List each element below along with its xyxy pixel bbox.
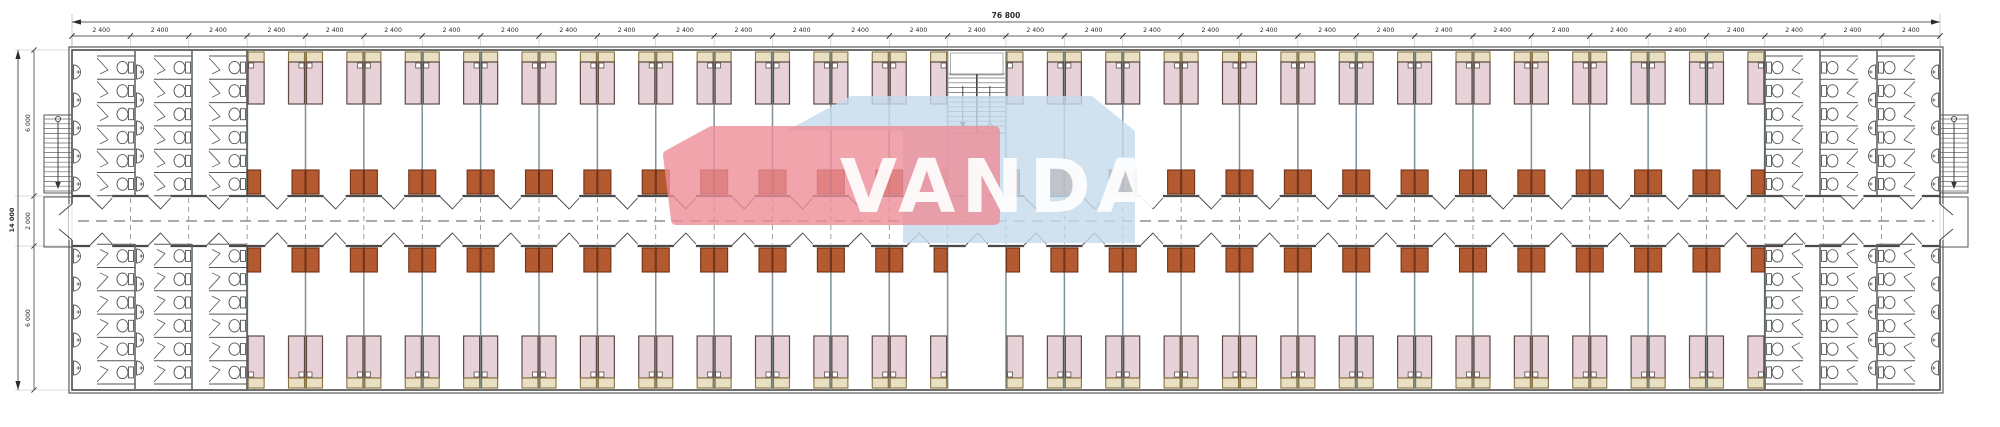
bed-symbol [1047,336,1063,388]
bed-symbol [405,52,421,104]
wardrobe-symbol [773,248,786,272]
bed-symbol [1241,336,1257,388]
wardrobe-symbol [1474,248,1487,272]
bed-symbol [1416,52,1432,104]
wardrobe-symbol [1751,248,1764,272]
wardrobe-symbol [1357,248,1370,272]
bed-symbol [1690,336,1706,388]
svg-text:2 400: 2 400 [326,27,344,34]
bed-symbol [1514,52,1530,104]
svg-text:2 400: 2 400 [384,27,402,34]
wardrobe-symbol [890,248,903,272]
bed-symbol [1591,336,1607,388]
bed-symbol [1223,52,1239,104]
bed-symbol [1357,336,1373,388]
wardrobe-symbol [526,248,539,272]
svg-text:2 400: 2 400 [1668,27,1686,34]
bed-symbol [774,52,790,104]
bed-symbol [890,336,906,388]
wardrobe-symbol [1357,170,1370,194]
wardrobe-symbol [1182,248,1195,272]
wardrobe-symbol [248,170,261,194]
svg-text:2 400: 2 400 [151,27,169,34]
bed-symbol [540,52,556,104]
wardrobe-symbol [364,170,377,194]
bed-symbol [1182,336,1198,388]
bed-symbol [1065,336,1081,388]
bed-symbol [832,52,848,104]
bed-symbol [248,52,264,104]
bed-symbol [1532,336,1548,388]
wardrobe-symbol [1240,170,1253,194]
wardrobe-symbol [1649,170,1662,194]
bed-symbol [522,52,538,104]
wardrobe-symbol [1693,170,1706,194]
bed-symbol [1591,52,1607,104]
wardrobe-symbol [656,248,669,272]
svg-text:2 400: 2 400 [910,27,928,34]
bed-symbol [1649,52,1665,104]
bed-symbol [1299,336,1315,388]
bed-symbol [639,336,655,388]
bed-symbol [1281,52,1297,104]
svg-text:2 400: 2 400 [267,27,285,34]
svg-text:6 000: 6 000 [25,309,32,327]
bed-symbol [347,336,363,388]
wardrobe-symbol [1401,248,1414,272]
wardrobe-symbol [1343,248,1356,272]
wardrobe-symbol [467,248,480,272]
bed-symbol [580,52,596,104]
bed-symbol [1514,336,1530,388]
wardrobe-symbol [1007,248,1020,272]
wardrobe-symbol [423,248,436,272]
wardrobe-symbol [306,248,319,272]
wardrobe-symbol [1576,248,1589,272]
wardrobe-symbol [467,170,480,194]
wardrobe-symbol [526,170,539,194]
svg-text:14 000: 14 000 [8,207,16,232]
bed-symbol [307,336,323,388]
bed-symbol [832,336,848,388]
bed-symbol [1281,336,1297,388]
svg-text:2 400: 2 400 [501,27,519,34]
wardrobe-symbol [876,248,889,272]
bed-symbol [1573,336,1589,388]
svg-text:2 400: 2 400 [1610,27,1628,34]
wardrobe-symbol [540,248,553,272]
wardrobe-symbol [1590,248,1603,272]
wardrobe-symbol [1518,248,1531,272]
bed-symbol [756,336,772,388]
bed-symbol [756,52,772,104]
bed-symbol [598,336,614,388]
wardrobe-symbol [817,248,830,272]
bed-symbol [931,336,947,388]
bed-symbol [1690,52,1706,104]
bed-symbol [1649,336,1665,388]
bed-symbol [289,52,305,104]
wardrobe-symbol [364,248,377,272]
bed-symbol [1708,52,1724,104]
wardrobe-symbol [715,248,728,272]
svg-text:2 400: 2 400 [209,27,227,34]
wardrobe-symbol [1168,170,1181,194]
wardrobe-symbol [1065,248,1078,272]
svg-text:2 400: 2 400 [1085,27,1103,34]
svg-text:2 400: 2 400 [1143,27,1161,34]
bed-symbol [657,52,673,104]
svg-text:2 400: 2 400 [1493,27,1511,34]
bed-symbol [1223,336,1239,388]
svg-text:2 400: 2 400 [1377,27,1395,34]
bed-symbol [1416,336,1432,388]
bed-symbol [347,52,363,104]
bed-symbol [1124,336,1140,388]
wardrobe-symbol [1635,248,1648,272]
svg-text:6 000: 6 000 [25,114,32,132]
svg-text:2 400: 2 400 [1552,27,1570,34]
bed-symbol [1164,52,1180,104]
bed-symbol [482,52,498,104]
bed-symbol [1708,336,1724,388]
wardrobe-symbol [1182,170,1195,194]
wardrobe-symbol [292,248,305,272]
bed-symbol [464,52,480,104]
svg-text:2 400: 2 400 [968,27,986,34]
wardrobe-symbol [1123,248,1136,272]
bed-symbol [580,336,596,388]
wardrobe-symbol [1284,248,1297,272]
wardrobe-symbol [759,248,772,272]
wardrobe-symbol [1051,248,1064,272]
bed-symbol [1164,336,1180,388]
bed-symbol [482,336,498,388]
wardrobe-symbol [1298,170,1311,194]
bed-symbol [1398,52,1414,104]
bed-symbol [1182,52,1198,104]
wardrobe-symbol [540,170,553,194]
bed-symbol [522,336,538,388]
wardrobe-symbol [1518,170,1531,194]
bed-symbol [1631,336,1647,388]
bed-symbol [423,336,439,388]
wardrobe-symbol [1751,170,1764,194]
bed-symbol [697,52,713,104]
bed-symbol [598,52,614,104]
bed-symbol [715,52,731,104]
bed-symbol [1748,336,1764,388]
svg-text:2 400: 2 400 [92,27,110,34]
bed-symbol [405,336,421,388]
bed-symbol [365,336,381,388]
bed-symbol [872,336,888,388]
floor-plan-screenshot: 76 8002 4002 4002 4002 4002 4002 4002 40… [0,0,2000,427]
wardrobe-symbol [1240,248,1253,272]
wardrobe-symbol [481,170,494,194]
wardrobe-symbol [1693,248,1706,272]
bed-symbol [289,336,305,388]
bed-symbol [1241,52,1257,104]
wardrobe-symbol [1343,170,1356,194]
wardrobe-symbol [1415,170,1428,194]
wardrobe-symbol [1168,248,1181,272]
bed-symbol [715,336,731,388]
svg-text:2 400: 2 400 [793,27,811,34]
wardrobe-symbol [1298,248,1311,272]
svg-text:2 400: 2 400 [1026,27,1044,34]
wardrobe-symbol [701,248,714,272]
bed-symbol [1456,336,1472,388]
bed-symbol [814,336,830,388]
bed-symbol [814,52,830,104]
watermark-text: VANDA [840,144,1160,230]
wardrobe-symbol [423,170,436,194]
svg-text:2 400: 2 400 [734,27,752,34]
wardrobe-symbol [1226,248,1239,272]
bed-symbol [657,336,673,388]
wardrobe-symbol [584,248,597,272]
bed-symbol [365,52,381,104]
wardrobe-symbol [1226,170,1239,194]
wardrobe-symbol [642,170,655,194]
wardrobe-symbol [409,170,422,194]
wardrobe-symbol [934,248,947,272]
bed-symbol [1339,336,1355,388]
wardrobe-symbol [642,248,655,272]
svg-text:2 400: 2 400 [1785,27,1803,34]
wardrobe-symbol [292,170,305,194]
wardrobe-symbol [1590,170,1603,194]
svg-text:2 400: 2 400 [559,27,577,34]
svg-text:2 400: 2 400 [1902,27,1920,34]
svg-text:2 000: 2 000 [25,212,32,230]
svg-text:2 400: 2 400 [1844,27,1862,34]
wardrobe-symbol [409,248,422,272]
svg-text:2 400: 2 400 [618,27,636,34]
bed-symbol [1631,52,1647,104]
bed-symbol [248,336,264,388]
bed-symbol [774,336,790,388]
wardrobe-symbol [1707,248,1720,272]
bed-symbol [1299,52,1315,104]
bed-symbol [1398,336,1414,388]
wardrobe-symbol [598,248,611,272]
svg-text:2 400: 2 400 [443,27,461,34]
bed-symbol [1339,52,1355,104]
svg-text:2 400: 2 400 [1435,27,1453,34]
bed-symbol [1357,52,1373,104]
wardrobe-symbol [598,170,611,194]
svg-text:2 400: 2 400 [1201,27,1219,34]
wardrobe-symbol [350,248,363,272]
wardrobe-symbol [1401,170,1414,194]
bed-symbol [464,336,480,388]
bed-symbol [697,336,713,388]
wardrobe-symbol [584,170,597,194]
bed-symbol [1106,336,1122,388]
wardrobe-symbol [1532,170,1545,194]
svg-text:76 800: 76 800 [992,11,1021,20]
wardrobe-symbol [1460,170,1473,194]
wardrobe-symbol [1649,248,1662,272]
svg-text:2 400: 2 400 [1318,27,1336,34]
bed-symbol [1748,52,1764,104]
bed-symbol [540,336,556,388]
bed-symbol [1456,52,1472,104]
bed-symbol [423,52,439,104]
wardrobe-symbol [350,170,363,194]
wardrobe-symbol [481,248,494,272]
bed-symbol [1106,52,1122,104]
wardrobe-symbol [1415,248,1428,272]
floor-plan-canvas: 76 8002 4002 4002 4002 4002 4002 4002 40… [0,0,2000,427]
wardrobe-symbol [306,170,319,194]
wardrobe-symbol [1576,170,1589,194]
bed-symbol [1573,52,1589,104]
bed-symbol [1007,336,1023,388]
wardrobe-symbol [1284,170,1297,194]
wardrobe-symbol [1109,248,1122,272]
bed-symbol [1474,52,1490,104]
bed-symbol [639,52,655,104]
bed-symbol [1474,336,1490,388]
bed-symbol [307,52,323,104]
wardrobe-symbol [1707,170,1720,194]
wardrobe-symbol [1635,170,1648,194]
bed-symbol [1532,52,1548,104]
bed-symbol [1124,52,1140,104]
wardrobe-symbol [248,248,261,272]
svg-text:2 400: 2 400 [851,27,869,34]
wardrobe-symbol [1474,170,1487,194]
wardrobe-symbol [831,248,844,272]
wardrobe-symbol [1460,248,1473,272]
svg-text:2 400: 2 400 [1727,27,1745,34]
svg-text:2 400: 2 400 [676,27,694,34]
wardrobe-symbol [1532,248,1545,272]
svg-text:2 400: 2 400 [1260,27,1278,34]
